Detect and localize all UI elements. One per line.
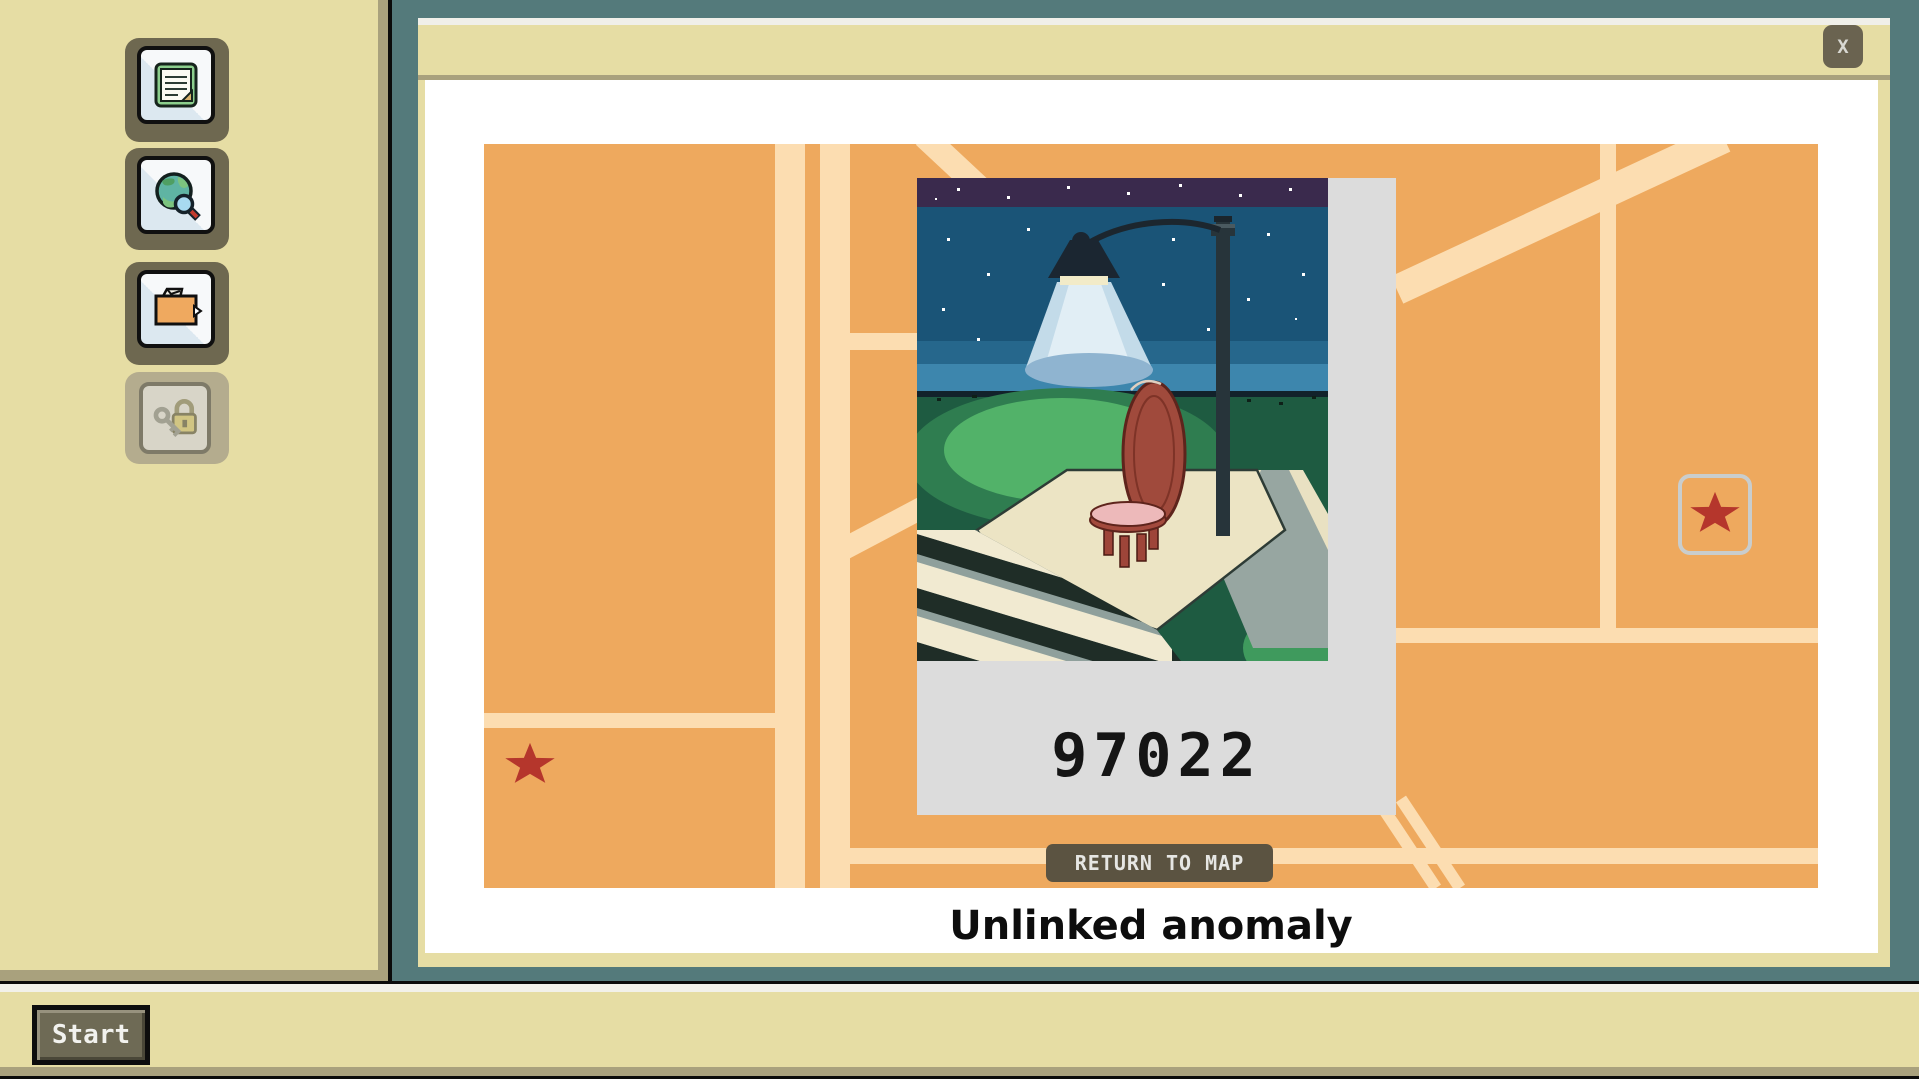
game-desktop: X	[0, 0, 1919, 1079]
city-map: 97022 RETURN TO MAP	[484, 144, 1818, 888]
globe-search-icon-art	[148, 167, 204, 223]
anomaly-polaroid: 97022	[917, 178, 1396, 815]
photo-id-number: 97022	[917, 697, 1396, 815]
window-close-button[interactable]: X	[1823, 25, 1863, 68]
anomaly-photo	[917, 178, 1328, 661]
desktop-icon-notes[interactable]	[125, 38, 229, 142]
folder-icon-art	[148, 281, 204, 337]
lock-key-icon-art	[149, 392, 201, 444]
window-top-highlight	[418, 18, 1890, 25]
window-content: 97022 RETURN TO MAP Unlinked anomaly	[425, 80, 1878, 953]
map-window: X	[418, 18, 1890, 967]
desktop-icon-files[interactable]	[125, 262, 229, 365]
folder-icon	[137, 270, 215, 348]
return-to-map-button[interactable]: RETURN TO MAP	[1046, 844, 1273, 882]
anomaly-caption: Unlinked anomaly	[484, 903, 1818, 949]
start-button[interactable]: Start	[32, 1005, 150, 1065]
window-titlebar[interactable]	[418, 25, 1890, 80]
notes-icon-art	[148, 57, 204, 113]
desktop-panel	[0, 0, 392, 981]
globe-search-icon	[137, 156, 215, 234]
notes-icon	[137, 46, 215, 124]
taskbar: Start	[0, 981, 1919, 1079]
desktop-icon-web-search[interactable]	[125, 148, 229, 250]
desktop-icon-locked	[125, 372, 229, 464]
lock-key-icon	[139, 382, 211, 454]
